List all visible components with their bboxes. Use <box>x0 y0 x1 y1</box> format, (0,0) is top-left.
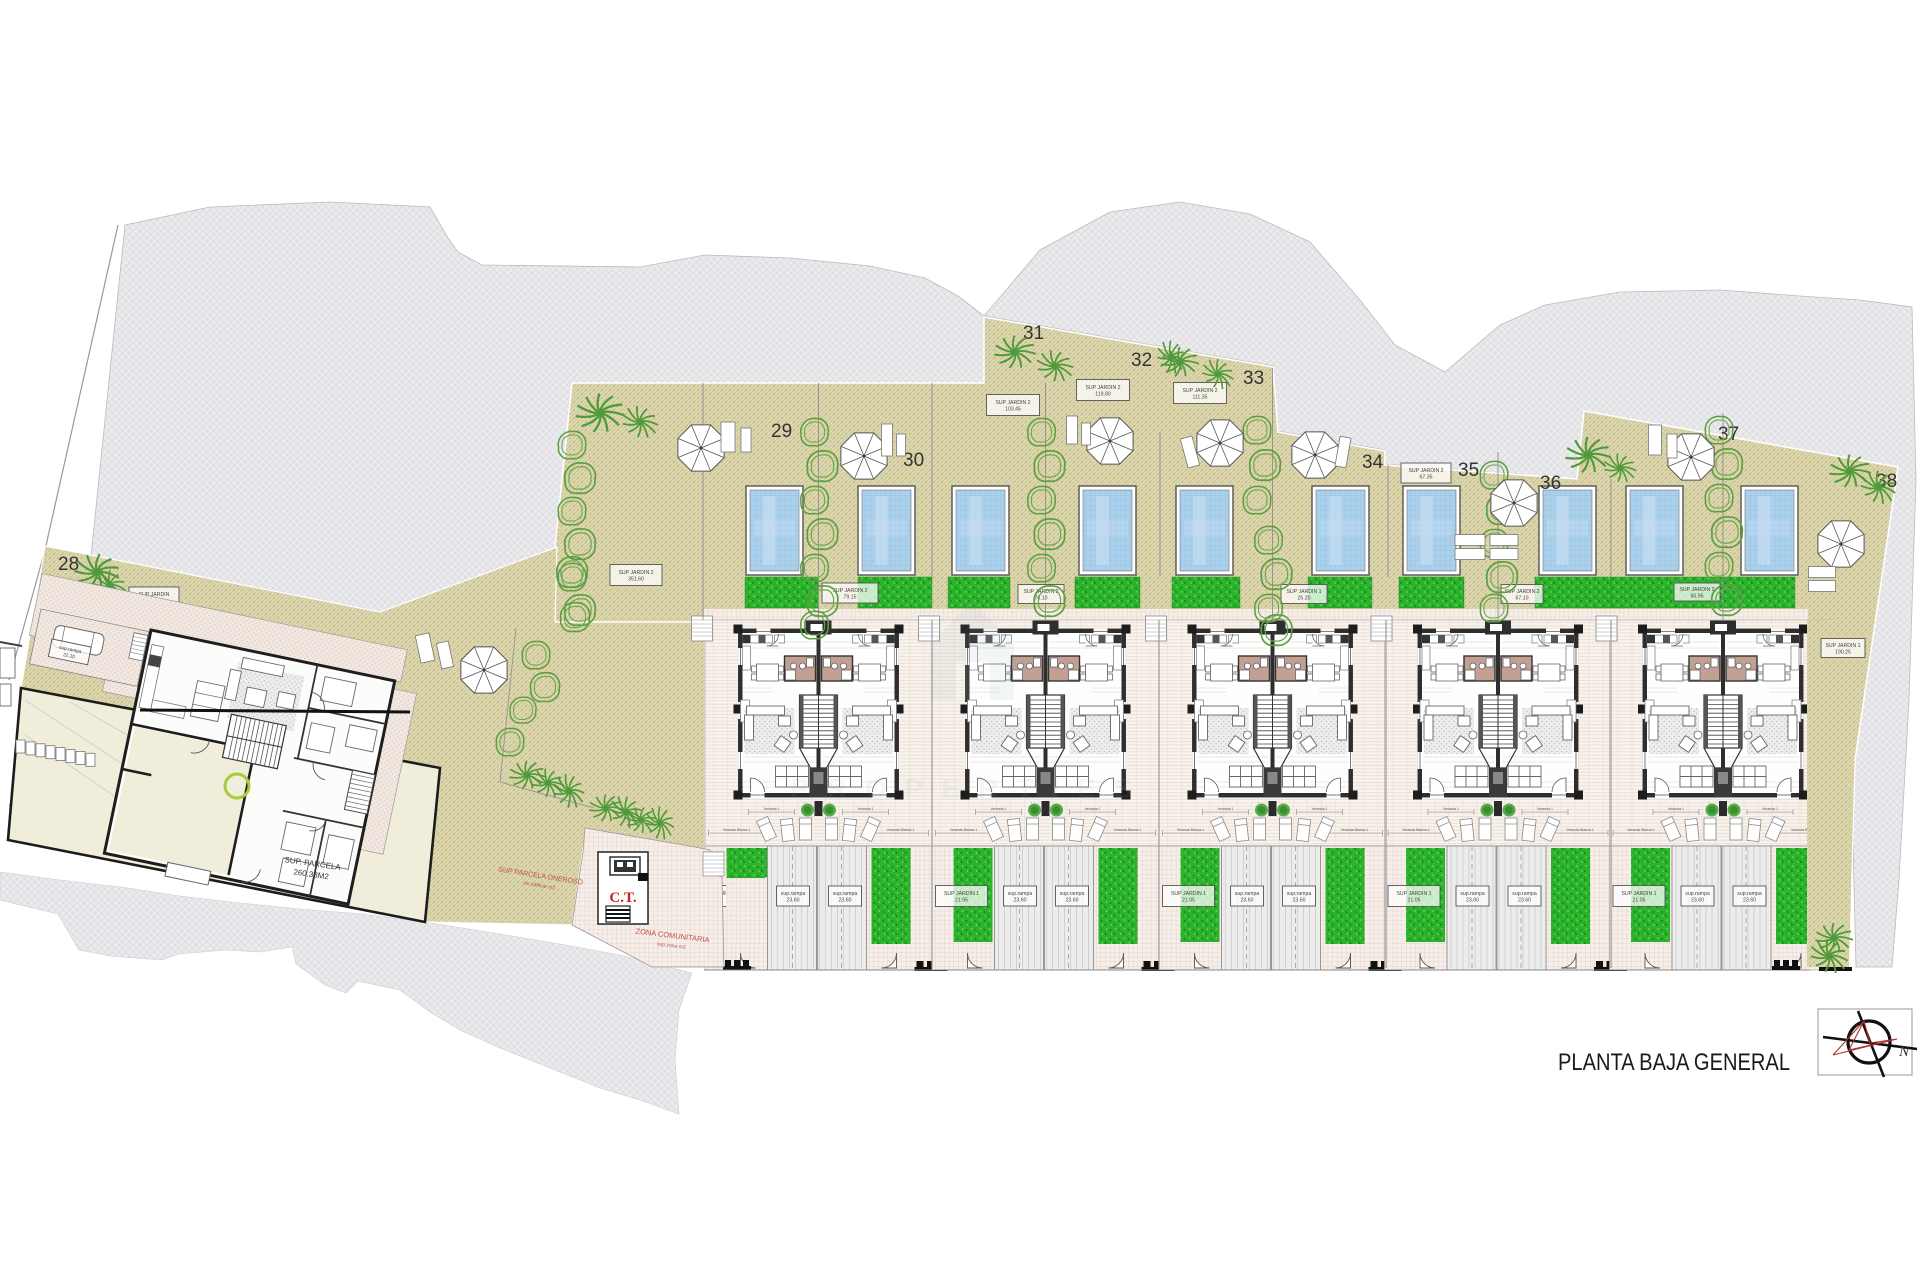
svg-text:PLANTA BAJA GENERAL: PLANTA BAJA GENERAL <box>1558 1049 1790 1076</box>
svg-text:SUP JARDIN 2: SUP JARDIN 2 <box>832 588 867 594</box>
svg-text:SUP JARDIN 2: SUP JARDIN 2 <box>1679 587 1714 593</box>
svg-text:76.10: 76.10 <box>1035 596 1048 602</box>
svg-text:34: 34 <box>1362 452 1384 473</box>
svg-text:111.35: 111.35 <box>1192 395 1207 401</box>
svg-text:25.20: 25.20 <box>1298 596 1311 602</box>
svg-text:33: 33 <box>1243 368 1264 389</box>
svg-text:C.T.: C.T. <box>609 890 636 906</box>
svg-text:190.25: 190.25 <box>1835 650 1851 656</box>
svg-text:PROPERTIES: PROPERTIES <box>790 773 1150 804</box>
svg-text:60.95: 60.95 <box>1691 594 1704 600</box>
svg-text:35: 35 <box>1458 460 1479 481</box>
svg-text:N: N <box>1898 1044 1910 1060</box>
svg-text:103.45: 103.45 <box>1005 407 1021 413</box>
svg-text:SUP JARDIN 2: SUP JARDIN 2 <box>1085 385 1120 391</box>
svg-text:67.10: 67.10 <box>1516 596 1529 602</box>
svg-text:30: 30 <box>903 450 924 471</box>
svg-text:351.60: 351.60 <box>628 577 644 583</box>
svg-text:SUP JARDIN 2: SUP JARDIN 2 <box>618 570 653 576</box>
svg-text:29: 29 <box>771 421 792 442</box>
svg-text:31: 31 <box>1023 323 1044 344</box>
svg-text:79.15: 79.15 <box>844 595 857 601</box>
svg-text:119.80: 119.80 <box>1095 392 1111 398</box>
svg-text:SUP JARDIN 2: SUP JARDIN 2 <box>1408 468 1443 474</box>
svg-text:SUP JARDIN 2: SUP JARDIN 2 <box>1504 589 1539 595</box>
svg-text:SUP JARDIN 2: SUP JARDIN 2 <box>1182 388 1217 394</box>
svg-text:36: 36 <box>1540 473 1561 494</box>
svg-text:SUP JARDIN 1: SUP JARDIN 1 <box>1825 643 1860 649</box>
svg-text:SUP JARDIN 1: SUP JARDIN 1 <box>1286 589 1321 595</box>
svg-text:32: 32 <box>1131 350 1152 371</box>
svg-text:67.35: 67.35 <box>1420 475 1433 481</box>
svg-text:SUP JARDIN 2: SUP JARDIN 2 <box>995 400 1030 406</box>
